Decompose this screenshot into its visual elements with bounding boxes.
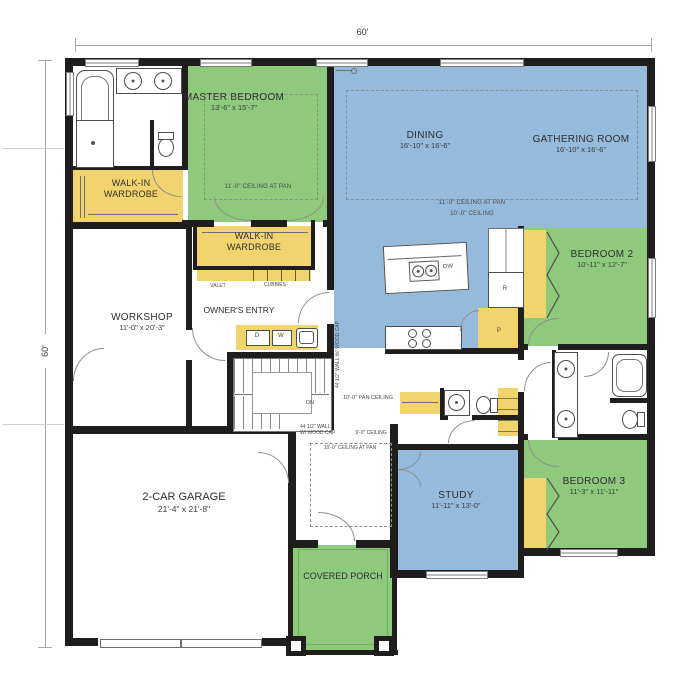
door-arc-powder [448, 420, 475, 443]
toilet-icon [622, 410, 638, 429]
extension-line-2 [2, 424, 64, 425]
wall-entry-kitchen-2 [327, 324, 334, 354]
cubbies-label: CUBBIES [242, 283, 308, 289]
window-gathering-right [648, 106, 656, 162]
label-garage: 2-CAR GARAGE 21'-4" x 21'-8" [114, 491, 254, 514]
window-study [426, 571, 488, 579]
wall-toilet-partition [150, 120, 154, 166]
sink-icon [154, 72, 172, 90]
wall-bath-compartment [610, 398, 647, 403]
wall-powder-bottom-2 [472, 415, 522, 420]
wall-left [65, 58, 73, 646]
master-ceiling-note: 11'-0" CEILING AT PAN [198, 184, 318, 191]
stair-rail-note: 44 1/2" WALL W/ WOOD CAP [336, 317, 342, 392]
top-dim-tick-right [651, 38, 652, 52]
sink-icon [557, 410, 575, 428]
left-dim-tick-bottom [38, 647, 52, 648]
utility-sink [296, 328, 318, 348]
wall-bath-top-2 [558, 344, 655, 350]
master-bedroom-dims: 13'-6" x 15'-7" [164, 104, 304, 113]
coat-closet [400, 392, 440, 414]
wall-wiw2-bottom [193, 266, 315, 270]
floor-plan: 60' 60' [0, 0, 700, 700]
bedroom-2-closet [524, 230, 546, 318]
master-shower [76, 120, 114, 168]
sink-icon [124, 72, 142, 90]
utility-sink-basin [299, 331, 314, 344]
wall-front-1 [288, 540, 318, 548]
door-arc-garage [258, 452, 289, 483]
valet-label: VALET [198, 284, 238, 290]
pan-ceiling-note: 10'-0" PAN CEILING [332, 395, 404, 401]
label-study: STUDY 11'-11" x 13'-0" [398, 490, 514, 511]
garage-door-left [100, 639, 181, 648]
wall-entry-kitchen-1 [327, 226, 334, 290]
label-bedroom-2: BEDROOM 2 10'-11" x 12'-7" [542, 249, 662, 270]
wall-master-dining [327, 58, 334, 226]
wall-wiw2-right [311, 220, 315, 270]
toilet-tank [158, 132, 174, 140]
gathering-dims: 16'-10" x 16'-6" [516, 146, 646, 155]
window-dining [316, 59, 368, 67]
top-dimension-label: 60' [340, 27, 385, 37]
window-master-bedroom [200, 59, 252, 67]
toilet-tank [637, 412, 645, 427]
wall-study-top [398, 444, 518, 450]
stair-rail-inner [252, 372, 312, 414]
wall-foyer-left [288, 426, 296, 548]
vent-arrow-head [351, 68, 357, 74]
shower-drain-icon [91, 141, 95, 145]
stair-down-label: DN [300, 400, 320, 406]
door-arc-owners-entry [298, 292, 329, 323]
dryer-label: D [249, 333, 265, 340]
label-bedroom-3: BEDROOM 3 11'-3" x 11'-11" [534, 476, 654, 497]
pantry-label: P [492, 328, 506, 335]
label-master-bedroom: MASTER BEDROOM 13'-6" x 15'-7" [164, 92, 304, 113]
burner-icon [422, 339, 431, 348]
burner-icon [408, 339, 417, 348]
top-dim-tick-left [75, 38, 76, 52]
wall-masterbed-bath [182, 58, 188, 170]
label-owners-entry: OWNER'S ENTRY [184, 305, 294, 315]
toilet-tank [490, 398, 498, 413]
left-dim-tick-top [38, 60, 52, 61]
closet-rod [402, 402, 438, 403]
burner-icon [408, 329, 417, 338]
door-arc-bath [524, 362, 551, 391]
wall-wardrobe-workshop [65, 222, 190, 229]
left-dimension-label: 60' [40, 334, 50, 368]
bifold-door-icon [546, 232, 562, 318]
window-bath-left [66, 72, 74, 116]
closet-rod [80, 176, 81, 218]
garage-dims: 21'-4" x 21'-8" [114, 504, 254, 514]
foyer-pan-note: 10'-0" CEILING AT PAN [312, 446, 388, 452]
door-arc-bath-compartment [584, 352, 609, 377]
window-master-bath [85, 59, 139, 67]
great-room-pan-note: 11'-0" CEILING AT PAN [412, 200, 532, 207]
foyer-rail-note-line2: W/ WOOD CAP [300, 430, 335, 436]
window-gathering [440, 59, 524, 67]
door-arc-workshop-exterior [73, 348, 104, 381]
study-dims: 11'-11" x 13'-0" [398, 502, 514, 511]
label-dining: DINING 16'-10" x 16'-6" [365, 130, 485, 151]
label-covered-porch: COVERED PORCH [295, 571, 391, 582]
sink-icon [448, 394, 465, 411]
bathtub-basin [616, 359, 643, 392]
door-arc-workshop [192, 328, 225, 361]
toilet-icon [158, 138, 174, 157]
dishwasher-label: DW [443, 264, 454, 272]
label-gathering-room: GATHERING ROOM 16'-10" x 16'-6" [516, 134, 646, 155]
window-bedroom-3 [560, 549, 618, 557]
linen-closet [498, 388, 518, 436]
great-room-ceiling-note: 10'-0" CEILING [412, 211, 532, 218]
bedroom-3-dims: 11'-3" x 11'-11" [534, 488, 654, 497]
wall-workshop-right-2 [186, 360, 192, 430]
washer-label: W [273, 333, 289, 340]
wall-master-bottom-2 [251, 220, 287, 227]
workshop-dims: 11'-0" x 20'-3" [82, 324, 202, 333]
porch-column-core [291, 641, 301, 651]
garage-door-right [181, 639, 262, 648]
bathtub [612, 354, 647, 397]
foyer-ceiling-note: 9'-0" CEILING [348, 431, 394, 437]
extension-line-1 [2, 148, 64, 149]
dining-dims: 16'-10" x 16'-6" [365, 142, 485, 151]
fridge-cabinet [488, 228, 524, 274]
wall-wiw2-left [193, 220, 197, 270]
wall-garage-bottom-1 [65, 638, 98, 646]
toilet-icon [476, 396, 491, 414]
garage-title: 2-CAR GARAGE [114, 491, 254, 504]
porch-inner-edge [298, 549, 388, 645]
closet-rod [84, 176, 85, 218]
top-dimension-line [75, 45, 652, 46]
refrigerator-label: R [498, 286, 512, 293]
label-workshop: WORKSHOP 11'-0" x 20'-3" [82, 312, 202, 333]
burner-icon [422, 329, 431, 338]
sink-icon [557, 360, 575, 378]
label-walk-in-wardrobe-1: WALK-IN WARDROBE [92, 178, 170, 199]
island-bar-edge [387, 246, 461, 260]
vent-arrow-line [336, 70, 352, 71]
label-walk-in-wardrobe-2: WALK-IN WARDROBE [215, 231, 293, 252]
bedroom-2-dims: 10'-11" x 12'-7" [542, 261, 662, 270]
porch-column-core [379, 641, 389, 651]
kitchen-island: DW [383, 242, 469, 294]
closet-rod [88, 214, 178, 215]
